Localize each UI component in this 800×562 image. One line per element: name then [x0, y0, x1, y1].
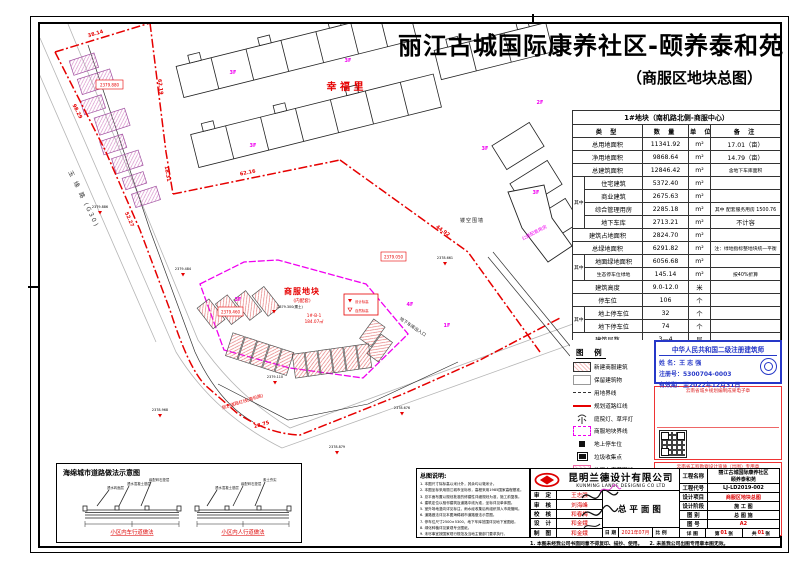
fold-tick-left	[28, 286, 40, 288]
land-index-table: 1#地块（南机路北侧-商服中心） 类 型 数 量 单 位 备 注 总用地面积11…	[572, 110, 781, 346]
date-value: 2021年07月	[619, 528, 653, 537]
road-section-canvas: 海绵城市道路做法示意图 透水砖面层 透水混凝土基层 级配碎石垫层 小区内车行道做…	[57, 464, 298, 539]
table-row: 净用地面积9868.64m²14.79（亩）	[573, 151, 781, 164]
design-item: 商服区地块总图	[708, 493, 779, 501]
planning-e-stamp: 云南省城乡规划编制成果电子章 单位名称：昆明兰德设计有限公司 资质等级：乙级 证…	[654, 386, 782, 460]
drawing-name: 总平面图	[603, 491, 679, 527]
role-label: 设 计	[531, 519, 557, 527]
legend-item-label: 地上停车位	[594, 440, 622, 448]
architect-validity: 有效期：至2022年12月31日	[659, 380, 777, 389]
drawing-category-label: 图 别	[680, 511, 708, 519]
index-table-panel: 1#地块（南机路北侧-商服中心） 类 型 数 量 单 位 备 注 总用地面积11…	[572, 110, 780, 346]
architect-reg-no: 注册号：5300704-0003	[659, 369, 777, 378]
layer-label: 级配碎石垫层	[241, 481, 262, 486]
fold-tick-top	[532, 14, 534, 24]
drawing-number-label: 图 号	[680, 520, 708, 528]
layer-label: 透水砖面层	[107, 485, 125, 490]
legend-item: 用地界线	[570, 387, 650, 400]
legend-item: 保留建筑物	[570, 374, 650, 387]
legend-item: 规划道路红线	[570, 399, 650, 412]
table-row: 其中地上停车位32个	[573, 307, 781, 320]
design-item-label: 设计项目	[680, 493, 708, 501]
role-name: 王志强	[557, 491, 603, 499]
project-title: 丽江古城国际康养社区-颐养泰和苑	[398, 26, 776, 61]
road-section-1	[83, 482, 181, 527]
table-row: 总用地面积11341.92m²17.01（亩）	[573, 138, 781, 151]
detail-label: 详 图	[680, 529, 706, 537]
note-line: 3. 总平面布置以规划批准的修建性详细规划为准，施工前复核。	[420, 494, 526, 500]
legend-item: 垃圾收集点	[570, 451, 650, 464]
layer-label: 透水混凝土基层	[127, 481, 151, 486]
legend-item-label: 用地界线	[594, 389, 616, 397]
table-row: 总绿地面积6291.82m²注：绿地指标整地块统一平衡	[573, 242, 781, 255]
layer-label: 透水混凝土基层	[215, 485, 239, 490]
legend-trash-point-icon	[577, 452, 588, 461]
company-name-en: KUNMING LANDE DESIGNIG CO LTD	[563, 484, 679, 489]
table-row: 其中住宅建筑5372.40m²	[573, 177, 781, 190]
design-stage-label: 设计阶段	[680, 502, 708, 510]
legend-new-building-icon	[573, 362, 591, 372]
legend-plot-boundary-icon	[573, 426, 591, 436]
project-name-1: 丽江古城国际康养社区	[718, 469, 768, 476]
legend-title: 图 例	[576, 347, 606, 359]
role-label: 审 核	[531, 500, 557, 508]
legend-item: 庭院灯、草坪灯	[570, 412, 650, 425]
title-block-note: 1. 本图未经我公司书面同意不得复印、描抄、使用。 2. 未盖我公司出图专用章本…	[530, 540, 784, 547]
legend-item: 商服地块界线	[570, 425, 650, 438]
legend-item-label: 商服地块界线	[594, 427, 628, 435]
legend-item-label: 新建商服建筑	[594, 363, 628, 371]
project-code: LJ-LD2019-002	[708, 484, 779, 492]
legend-item-label: 垃圾收集点	[594, 453, 622, 461]
col-remark: 备 注	[711, 125, 781, 138]
legend-item: 地上停车位	[570, 438, 650, 451]
qr-code-icon	[659, 430, 687, 458]
legend-lamp-icon	[575, 413, 589, 425]
table-row: 生态停车位绿地145.14m²按40%折算	[573, 268, 781, 281]
legend-kept-building-icon	[573, 375, 591, 385]
section2-caption: 小区内人行道做法	[221, 528, 265, 536]
drawing-number: A2	[708, 520, 779, 528]
table-row: 总建筑面积12846.42m²含地下车库面积	[573, 164, 781, 177]
role-label: 制 图	[531, 529, 557, 537]
legend-item: 新建商服建筑	[570, 361, 650, 374]
architect-seal-icon	[760, 358, 777, 375]
role-label: 校 核	[531, 510, 557, 518]
project-code-label: 工程代号	[680, 484, 708, 492]
table-row: 地下车库2713.21m²不计容	[573, 216, 781, 229]
road-section-2	[195, 482, 291, 527]
table-row: 地下停车位74个	[573, 320, 781, 333]
role-rows: 审 定王志强 审 核刘海峰 校 核和春梅 设 计和金娥 制 图和金娥	[531, 491, 603, 537]
notes-title: 总图说明:	[420, 471, 526, 480]
sponge-road-detail-box: 海绵城市道路做法示意图 透水砖面层 透水混凝土基层 级配碎石垫层 小区内车行道做…	[56, 463, 302, 543]
note-line: 2. 本图坐标采用丽江城市坐标系，高程采用1985国家高程基准。	[420, 487, 526, 493]
drawing-subtitle: （商服区地块总图）	[398, 67, 776, 88]
title-block: 昆明兰德设计有限公司 KUNMING LANDE DESIGNIG CO LTD…	[530, 468, 780, 538]
layer-label: 级配碎石垫层	[149, 477, 170, 482]
table-title: 1#地块（南机路北侧-商服中心）	[573, 111, 781, 125]
drawing-category: 总 图 施	[708, 511, 779, 519]
legend-parking-icon	[579, 441, 585, 447]
legend-item-label: 保留建筑物	[594, 376, 622, 384]
role-name: 刘海峰	[557, 500, 603, 508]
legend-site-boundary-icon	[573, 392, 591, 393]
col-unit: 单 位	[689, 125, 711, 138]
project-name-2: 颐养泰和苑	[731, 476, 756, 483]
drawing-sheet: 2379.880 2379.460 2379.050 2379.886 2379…	[0, 0, 800, 562]
role-name: 和金娥	[557, 529, 603, 537]
table-row: 建筑占地面积2824.70m²	[573, 229, 781, 242]
company-name-cn: 昆明兰德设计有限公司	[563, 470, 679, 484]
design-stage: 施 工 图	[708, 502, 779, 510]
note-line: 9. 未尽事宜按国家现行规范及当地主管部门要求执行。	[420, 531, 526, 537]
col-type: 类 型	[573, 125, 643, 138]
company-logo-icon	[531, 472, 563, 488]
table-row: 建筑高度9.0-12.0米	[573, 281, 781, 294]
project-name-label: 工程名称	[680, 469, 708, 483]
role-name: 和金娥	[557, 519, 603, 527]
section1-caption: 小区内车行道做法	[110, 528, 154, 536]
sponge-box-title: 海绵城市道路做法示意图	[63, 468, 140, 477]
general-notes-box: 总图说明: 1. 本图尺寸除标高以米计外，其余均以毫米计。 2. 本图坐标采用丽…	[416, 468, 530, 538]
planning-e-stamp-title: 云南省城乡规划编制成果电子章	[657, 388, 779, 428]
table-row: 其中地面绿地面积6056.68m²	[573, 255, 781, 268]
scale-label: 比 例	[653, 528, 669, 537]
architect-stamp: 中华人民共和国二级注册建筑师 姓 名：王 志 强 注册号：5300704-000…	[654, 340, 782, 384]
role-label: 审 定	[531, 491, 557, 499]
drawing-title: 丽江古城国际康养社区-颐养泰和苑 （商服区地块总图）	[398, 26, 776, 88]
table-row: 综合管理用房2285.18m²其中 配套服务用房 1500.76	[573, 203, 781, 216]
col-qty: 数 量	[643, 125, 689, 138]
role-name: 和春梅	[557, 510, 603, 518]
layer-label: 素土夯实	[263, 477, 277, 482]
legend-road-redline-icon	[573, 405, 591, 407]
table-row: 商业建筑2675.63m²	[573, 190, 781, 203]
date-label: 日 期	[603, 528, 619, 537]
table-row: 停车位106个	[573, 294, 781, 307]
architect-stamp-title: 中华人民共和国二级注册建筑师	[659, 344, 777, 356]
sheet-count-row: 详 图 第01张 共01张	[680, 529, 779, 537]
legend-item-label: 庭院灯、草坪灯	[594, 415, 633, 423]
date-scale-row: 日 期 2021年07月 比 例	[603, 527, 679, 537]
legend-item-label: 规划道路红线	[594, 402, 628, 410]
